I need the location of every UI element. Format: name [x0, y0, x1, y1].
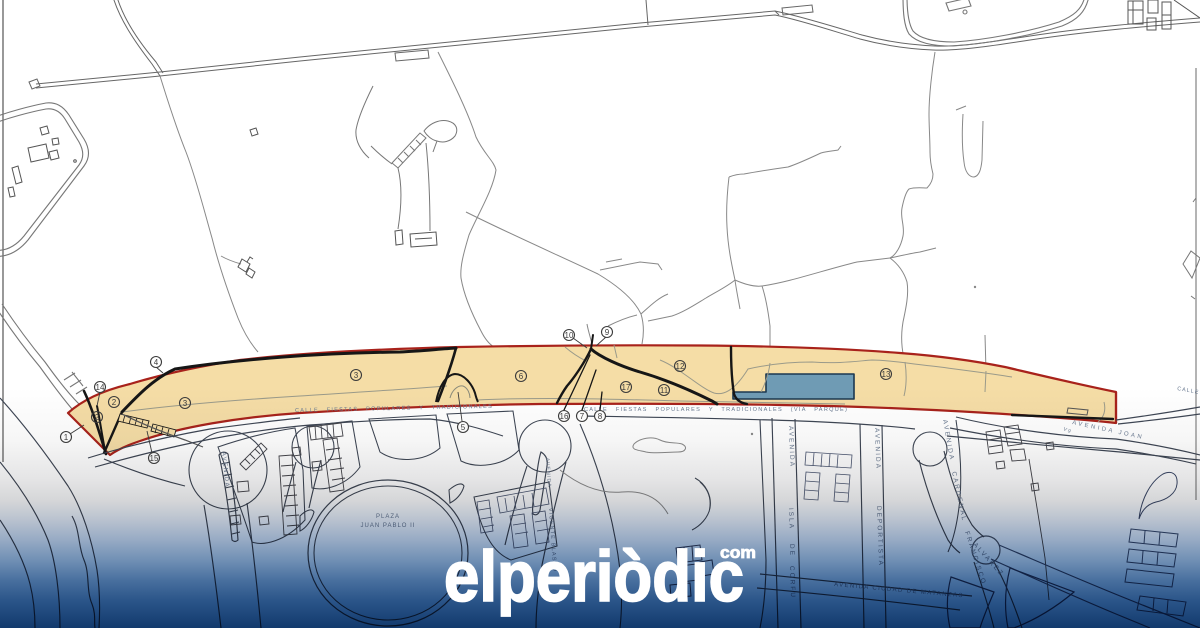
svg-text:4: 4: [154, 358, 159, 367]
svg-text:12: 12: [676, 362, 685, 371]
svg-text:10: 10: [565, 331, 574, 340]
svg-text:6: 6: [519, 372, 524, 381]
svg-text:9: 9: [605, 328, 610, 337]
svg-text:3: 3: [354, 371, 359, 380]
svg-text:elperiòdic: elperiòdic: [444, 538, 744, 617]
svg-text:13: 13: [882, 370, 891, 379]
svg-text:com: com: [720, 544, 756, 562]
